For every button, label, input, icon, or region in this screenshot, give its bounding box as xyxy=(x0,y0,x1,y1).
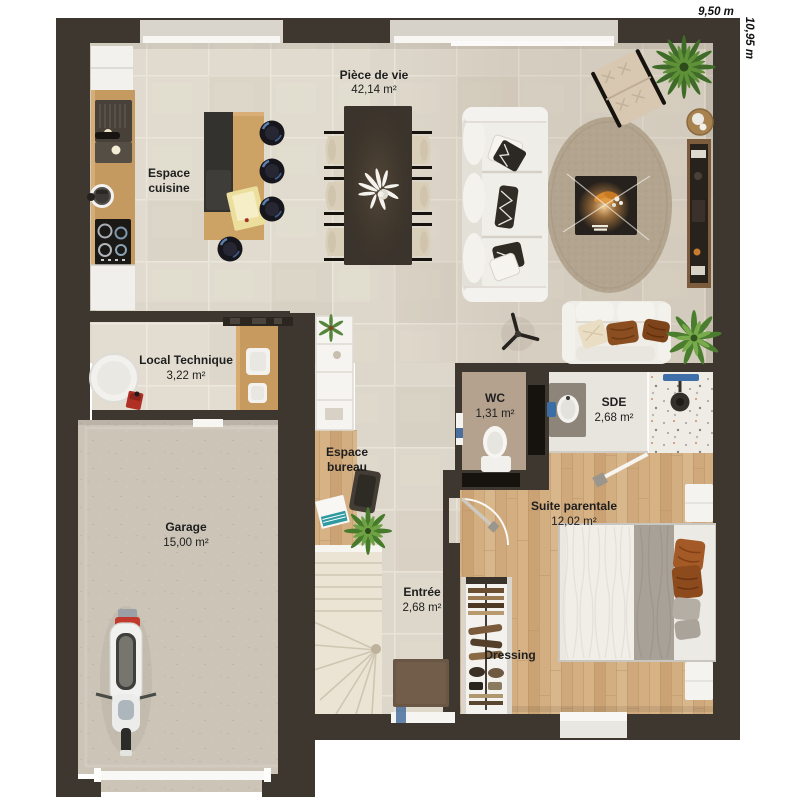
svg-text:Entrée: Entrée xyxy=(403,585,441,599)
svg-text:3,22 m²: 3,22 m² xyxy=(167,370,206,382)
svg-text:2,68 m²: 2,68 m² xyxy=(403,602,442,614)
svg-text:Dressing: Dressing xyxy=(484,648,535,662)
svg-text:cuisine: cuisine xyxy=(148,181,190,195)
svg-text:Espace: Espace xyxy=(326,445,368,459)
svg-text:Espace: Espace xyxy=(148,166,190,180)
svg-text:2,68 m²: 2,68 m² xyxy=(595,412,634,424)
svg-text:Local Technique: Local Technique xyxy=(139,353,233,367)
svg-text:42,14 m²: 42,14 m² xyxy=(351,84,397,96)
svg-text:WC: WC xyxy=(485,391,505,405)
svg-text:15,00 m²: 15,00 m² xyxy=(163,537,209,549)
svg-text:Garage: Garage xyxy=(165,520,207,534)
svg-text:9,50 m: 9,50 m xyxy=(698,6,734,18)
svg-text:Pièce de vie: Pièce de vie xyxy=(340,68,409,82)
svg-text:Suite parentale: Suite parentale xyxy=(531,499,617,513)
svg-text:10,95 m: 10,95 m xyxy=(743,17,755,59)
svg-text:12,02 m²: 12,02 m² xyxy=(551,516,597,528)
svg-text:1,31 m²: 1,31 m² xyxy=(476,408,515,420)
svg-text:SDE: SDE xyxy=(602,395,627,409)
svg-text:bureau: bureau xyxy=(327,460,367,474)
